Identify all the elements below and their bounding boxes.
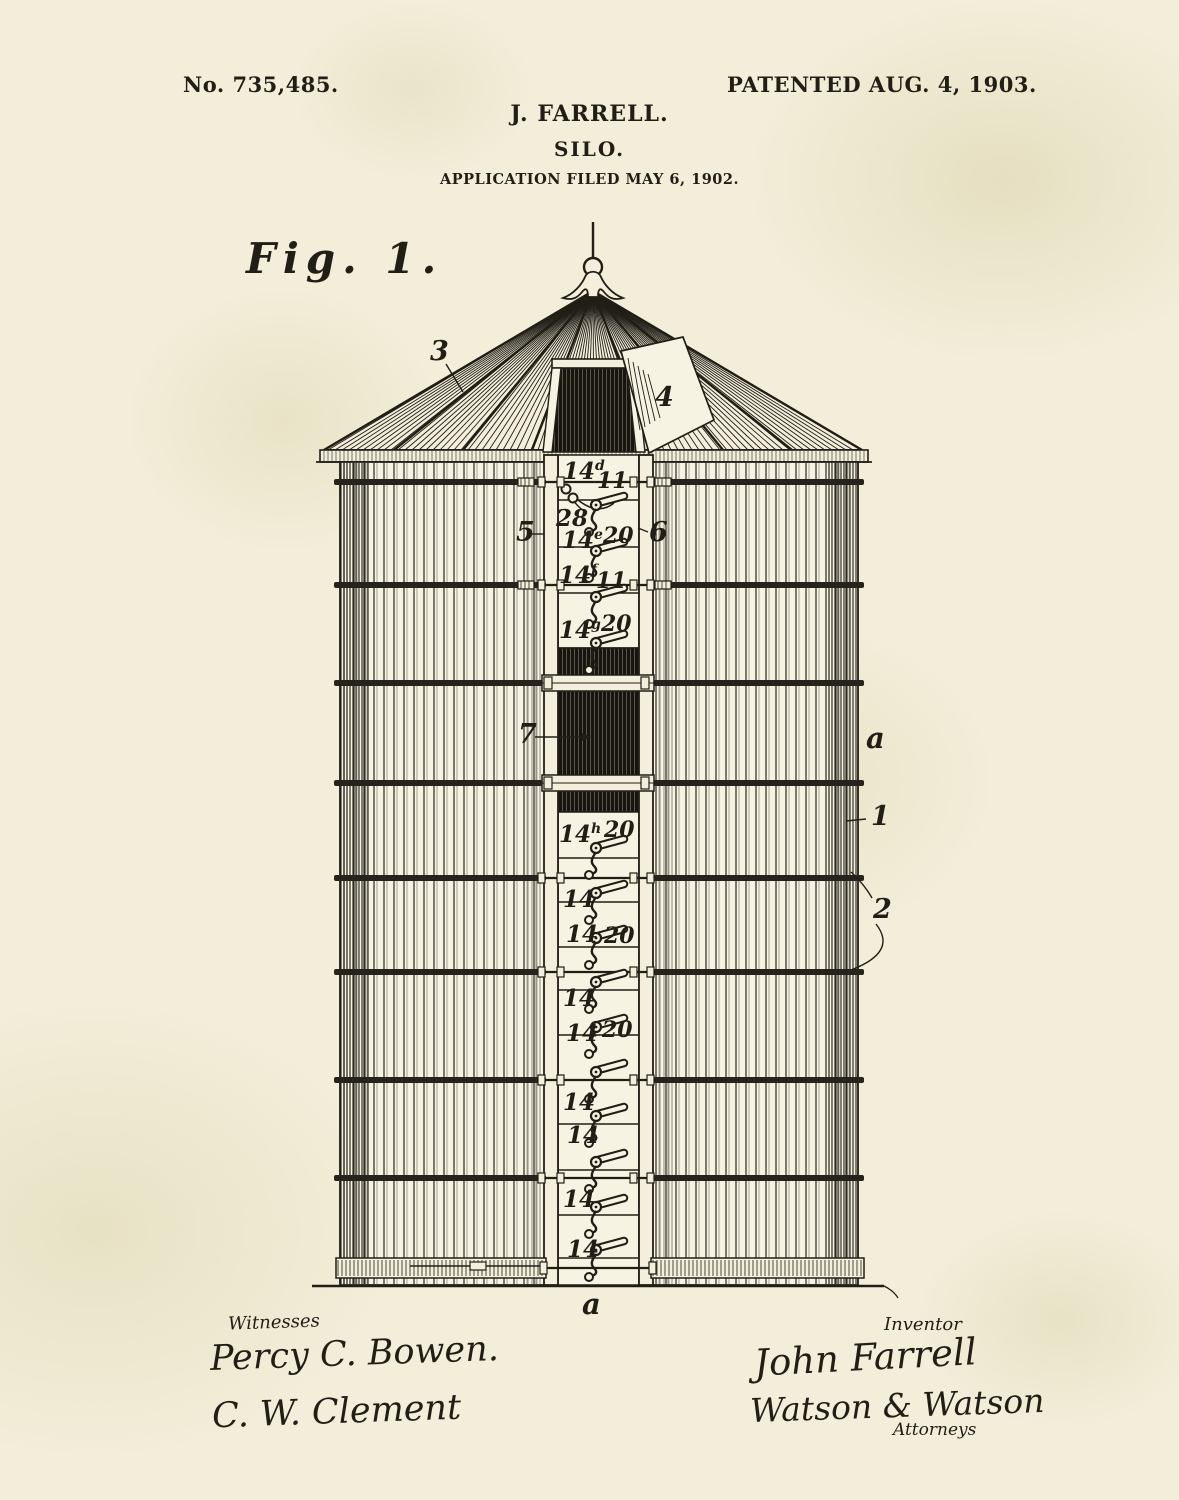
part-label-stave: 1 bbox=[871, 801, 890, 832]
part-label-wall: a bbox=[866, 721, 885, 755]
door-panel-label: 14 bbox=[563, 1186, 595, 1213]
part-label-base: a bbox=[582, 1287, 601, 1321]
door-panel-ref-label: 20 bbox=[603, 817, 635, 843]
door-panel-label: 14 bbox=[567, 1122, 599, 1149]
door-panel-ref-label: 20 bbox=[603, 923, 635, 949]
figure-root: 34567a12a14d112814e2014f1114g2014h201414… bbox=[312, 222, 898, 1321]
door-panel-ref-label: 20 bbox=[602, 523, 634, 549]
door-panel-ref-label: 20 bbox=[600, 611, 632, 637]
attorneys-heading: Attorneys bbox=[893, 1420, 976, 1440]
part-label-right-door-rail: 6 bbox=[649, 517, 668, 548]
ground-line bbox=[312, 1286, 898, 1298]
patent-page: No. 735,485. PATENTED AUG. 4, 1903. J. F… bbox=[0, 0, 1179, 1500]
door-panel-label: 14 bbox=[566, 1020, 598, 1047]
part-label-hoop-pair: 2 bbox=[872, 894, 892, 925]
door-panel-label: 14 bbox=[563, 1089, 595, 1116]
part-label-chute-door: 7 bbox=[518, 719, 537, 750]
door-panel-ref-label: 11 bbox=[597, 468, 628, 494]
silo-patent-figure: 34567a12a14d112814e2014f1114g2014h201414… bbox=[0, 0, 1179, 1500]
part-label-left-door-rail: 5 bbox=[516, 517, 535, 548]
finial-icon bbox=[563, 222, 623, 299]
door-panel-ref-label: 11 bbox=[596, 568, 627, 594]
door-panel-label: 14 bbox=[567, 1236, 599, 1263]
part-label-roof-hatch: 4 bbox=[655, 382, 674, 413]
witnesses-heading: Witnesses bbox=[228, 1310, 320, 1334]
door-panel-ref-label: 20 bbox=[601, 1017, 633, 1043]
door-panel-label: 14 bbox=[563, 886, 595, 913]
part-label-roof: 3 bbox=[430, 336, 449, 367]
door-panel-label: 14 bbox=[566, 921, 598, 948]
door-panel-label: 14 bbox=[563, 985, 595, 1012]
